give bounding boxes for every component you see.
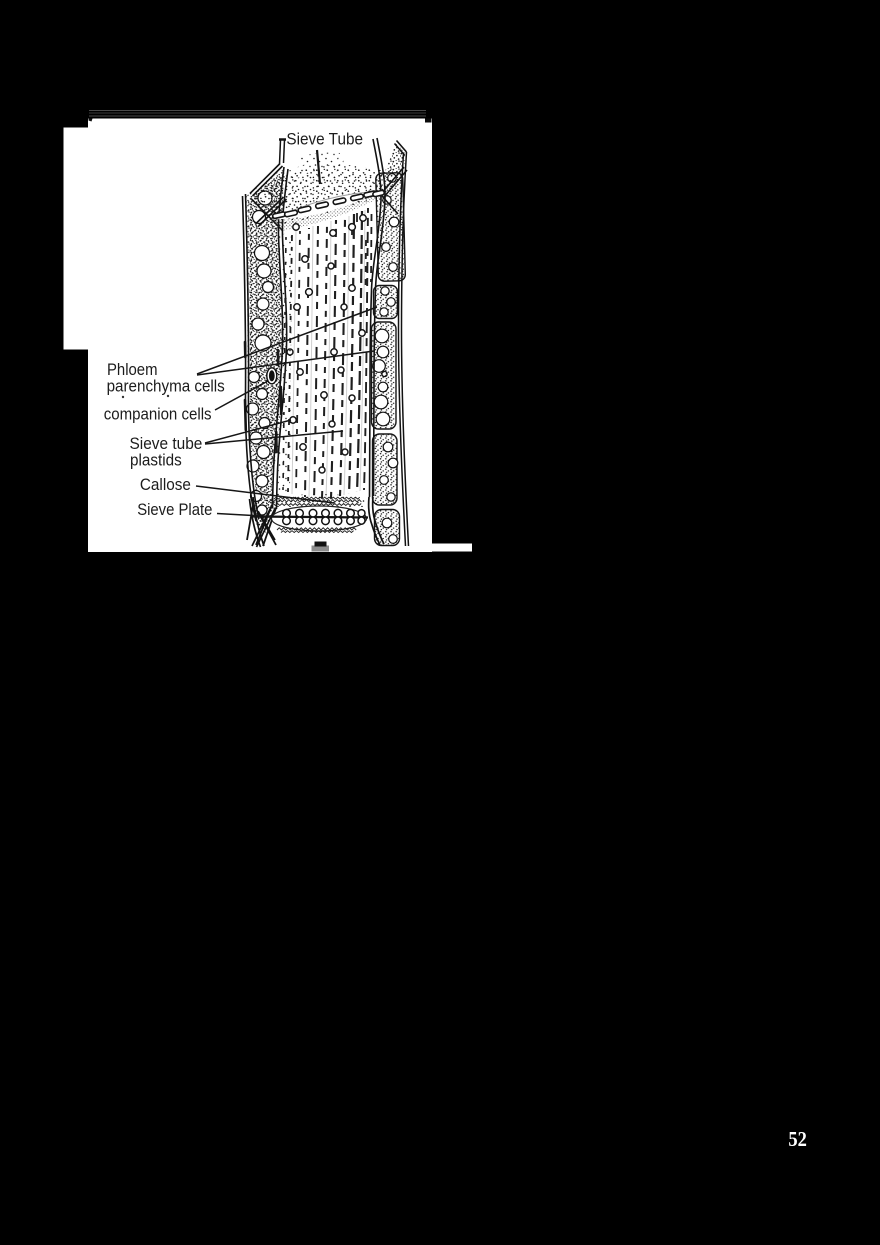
svg-text:52: 52 (788, 1127, 807, 1151)
svg-text:Callose: Callose (140, 476, 191, 494)
svg-text:parenchyma cells: parenchyma cells (107, 377, 225, 395)
svg-text:Phloem: Phloem (107, 361, 158, 379)
svg-text:companion cells: companion cells (104, 406, 212, 424)
svg-text:plastids: plastids (130, 452, 182, 470)
svg-text:Sieve Tube: Sieve Tube (286, 130, 363, 148)
svg-text:Sieve Plate: Sieve Plate (137, 501, 212, 519)
svg-text:Sieve tube: Sieve tube (130, 435, 203, 453)
